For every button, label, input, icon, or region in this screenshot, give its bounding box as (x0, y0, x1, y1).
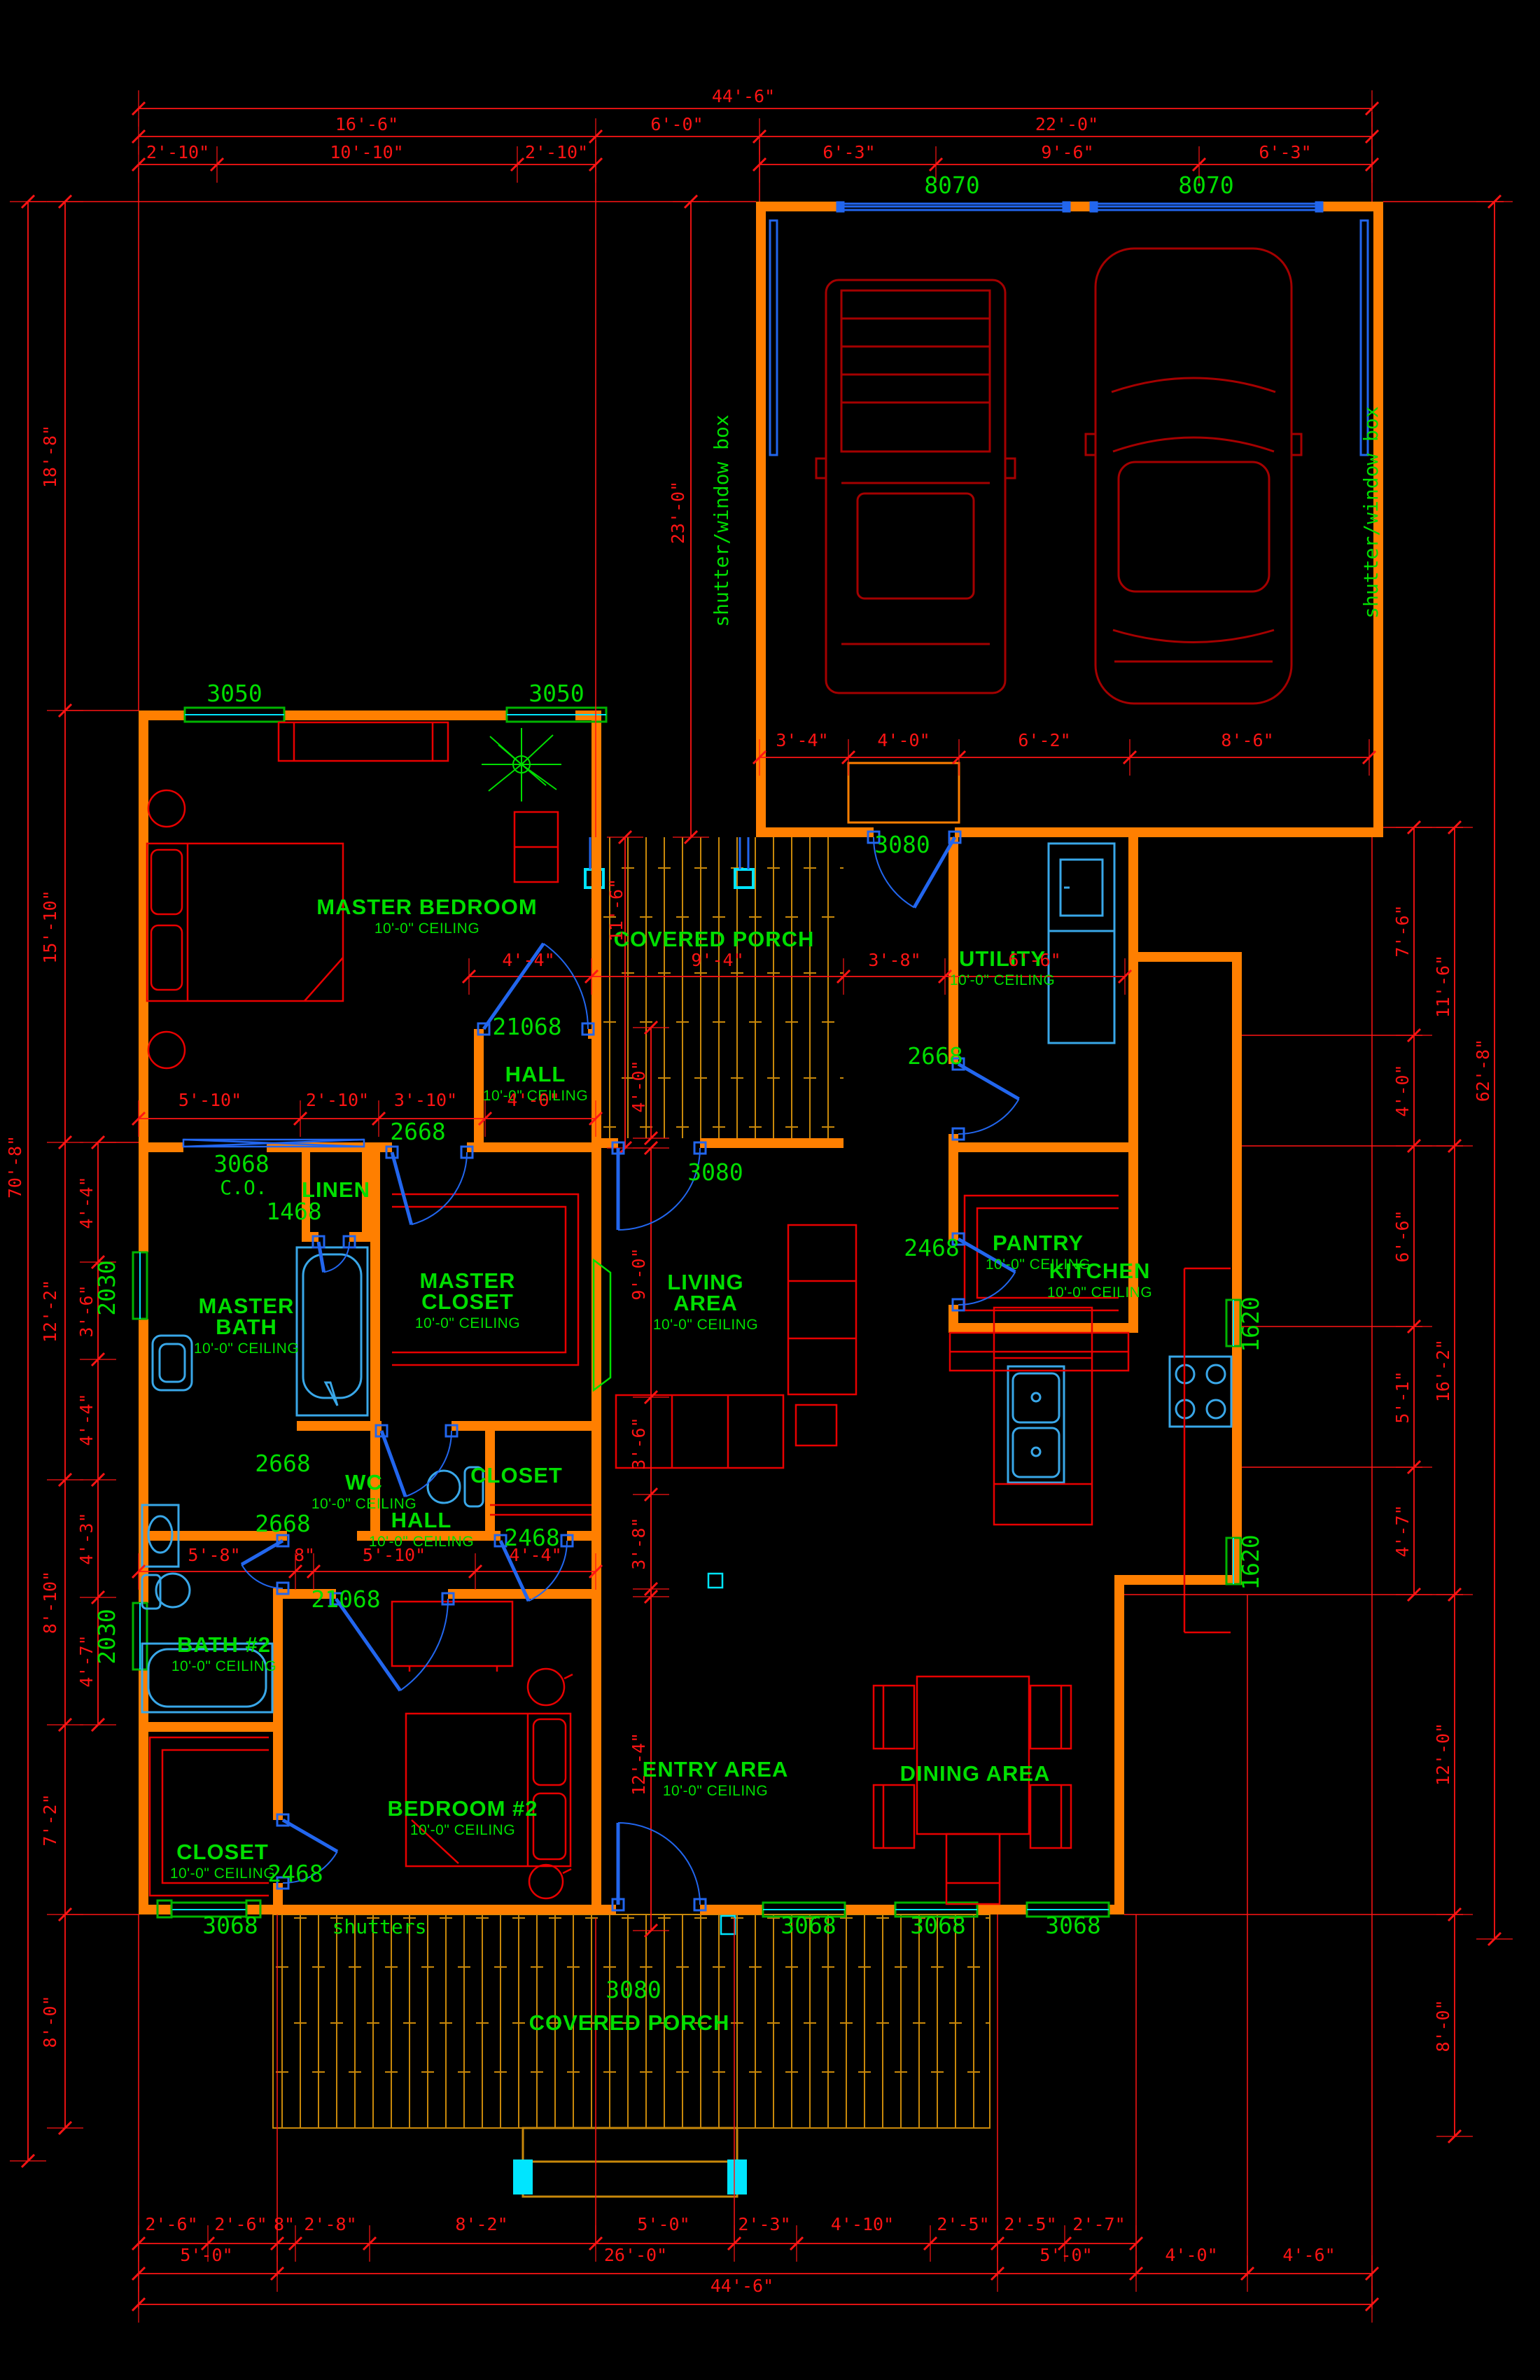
dimension-44: 2'-10" (306, 1090, 369, 1110)
b2-stool (529, 1865, 563, 1898)
room-label-dining-area: DINING AREA (900, 1761, 1051, 1786)
opening-tag-2468-6: 2468 (904, 1234, 959, 1261)
door-2668-wc (376, 1425, 457, 1497)
dimension-32: 62'-8" (1473, 1039, 1493, 1102)
opening-tag-3050-3: 3050 (528, 680, 584, 707)
dimension-63: 2'-5" (937, 2214, 989, 2234)
mb-dresser (279, 722, 448, 761)
dimension-22: 23'-0" (668, 481, 688, 544)
shutter-strip (770, 220, 777, 455)
dining-chair (1030, 1785, 1071, 1848)
opening-tag-1620-20: 1620 (1237, 1296, 1264, 1352)
room-label-hall-upper: HALL (505, 1062, 566, 1086)
dimension-30: 12'-0" (1433, 1723, 1453, 1786)
room-label-covered-porch-bottom: COVERED PORCH (529, 2010, 730, 2035)
dimension-65: 2'-7" (1072, 2214, 1125, 2234)
dimension-66: 5'-0" (180, 2245, 232, 2265)
room-label-master-closet: MASTERCLOSET (420, 1268, 516, 1314)
floor-box (708, 1574, 722, 1588)
kitchen-sink (1008, 1366, 1064, 1483)
ceiling-label-master-bedroom: 10'-0" CEILING (374, 920, 479, 937)
dimension-1: 16'-6" (335, 114, 398, 134)
opening-tag-3068-25: 3068 (1045, 1912, 1100, 1939)
b2-stool (528, 1669, 564, 1705)
dimension-26: 5'-1" (1392, 1371, 1413, 1423)
dimension-0: 44'-6" (712, 86, 775, 106)
ceiling-label-master-closet: 10'-0" CEILING (415, 1315, 520, 1331)
dimension-11: 18'-8" (40, 425, 60, 488)
dimension-55: 2'-6" (145, 2214, 197, 2234)
dimension-61: 2'-3" (738, 2214, 790, 2234)
dining-chair (874, 1686, 914, 1749)
opening-tag-2668-13: 2668 (255, 1450, 310, 1477)
dimension-67: 26'-0" (604, 2245, 667, 2265)
room-label-kitchen: KITCHEN (1049, 1259, 1151, 1283)
opening-tag-2030-12: 2030 (93, 1260, 120, 1315)
side-table (796, 1405, 836, 1445)
b2-bed (406, 1714, 570, 1866)
dimension-27: 4'-7" (1392, 1504, 1413, 1557)
dimension-4: 2'-10" (146, 142, 209, 162)
ceiling-label-master-bath: 10'-0" CEILING (194, 1340, 299, 1357)
ceiling-label-kitchen: 10'-0" CEILING (1047, 1284, 1152, 1301)
dimension-42: 4'-0" (629, 1060, 649, 1112)
dimension-13: 12'-2" (40, 1280, 60, 1343)
opening-tag-8070-0: 8070 (924, 171, 979, 199)
opening-tag-2668-15: 2668 (255, 1510, 310, 1537)
b2-desk (392, 1602, 512, 1666)
ceiling-label-entry-area: 10'-0" CEILING (663, 1783, 768, 1799)
floor-plan-canvas: Residential floor plan - CAD drawing (0, 0, 1540, 2380)
dimension-8: 9'-6" (1041, 142, 1093, 162)
dimension-57: 8" (274, 2214, 295, 2234)
dimension-45: 3'-10" (394, 1090, 457, 1110)
opening-tag-3080-19: 3080 (605, 1976, 661, 2003)
dimension-7: 6'-3" (822, 142, 875, 162)
door-jamb (1063, 202, 1070, 211)
room-label-bath-2: BATH #2 (177, 1632, 271, 1657)
dimension-18: 3'-6" (76, 1284, 97, 1337)
dimension-29: 16'-2" (1433, 1339, 1453, 1402)
dimension-38: 9'-4" (691, 950, 743, 970)
dimension-14: 8'-10" (40, 1571, 60, 1634)
sofa (788, 1225, 856, 1394)
dimension-41: 11'-6" (606, 878, 626, 941)
opening-tag-8070-1: 8070 (1178, 171, 1233, 199)
room-label-bedroom-2: BEDROOM #2 (388, 1796, 538, 1821)
opening-tag-2668-5: 2668 (907, 1042, 962, 1070)
porch-post (513, 2159, 533, 2194)
mb-bed (147, 843, 343, 1001)
opening-tag-3080-4: 3080 (874, 831, 930, 858)
dimension-47: 9'-0" (629, 1247, 649, 1300)
opening-tag-21068-17: 21068 (311, 1585, 380, 1613)
garage-step (848, 763, 959, 822)
opening-tag-21068-8: 21068 (492, 1013, 561, 1040)
door-2668-master-closet (386, 1147, 472, 1224)
opening-tag-3050-2: 3050 (206, 680, 262, 707)
dimension-46: 4'-0" (507, 1090, 559, 1110)
dining-bench (946, 1834, 1000, 1904)
dimension-12: 15'-10" (40, 890, 60, 963)
dimension-43: 5'-10" (178, 1090, 241, 1110)
ceiling-label-bedroom-2: 10'-0" CEILING (410, 1822, 515, 1838)
dimension-35: 6'-2" (1018, 730, 1070, 750)
opening-tag-2668-9: 2668 (390, 1118, 445, 1145)
dimension-71: 44'-6" (710, 2276, 773, 2296)
room-label-hall-lower: HALL (391, 1508, 452, 1532)
annotation-3: shutter/window box (1359, 406, 1382, 618)
room-label-closet-bedroom2: CLOSET (176, 1840, 269, 1864)
ceiling-label-closet-bedroom2: 10'-0" CEILING (170, 1865, 275, 1882)
door-3080-porch (612, 1142, 706, 1230)
dimension-6: 2'-10" (525, 142, 588, 162)
dimension-2: 6'-0" (650, 114, 703, 134)
dimension-10: 70'-8" (5, 1135, 25, 1198)
dimension-70: 4'-6" (1282, 2245, 1335, 2265)
dimension-15: 7'-2" (40, 1793, 60, 1846)
room-label-covered-porch-top: COVERED PORCH (614, 927, 815, 951)
utility-appliance (1049, 843, 1114, 1043)
opening-tag-3080-7: 3080 (687, 1158, 743, 1186)
dimension-62: 4'-10" (831, 2214, 894, 2234)
dimension-68: 5'-0" (1039, 2245, 1092, 2265)
opening-tag-3068-23: 3068 (780, 1912, 836, 1939)
dimension-19: 4'-4" (76, 1393, 97, 1445)
dimension-56: 2'-6" (214, 2214, 267, 2234)
dimension-5: 10'-10" (330, 142, 403, 162)
dimension-64: 2'-5" (1004, 2214, 1056, 2234)
annotation-1: shutters (332, 1915, 427, 1938)
door-2668-utility (953, 1058, 1019, 1140)
dimension-48: 3'-6" (629, 1417, 649, 1469)
opening-tag-2468-18: 2468 (267, 1860, 323, 1887)
ceiling-label-bath-2: 10'-0" CEILING (171, 1658, 276, 1674)
ceiling-label-utility: 10'-0" CEILING (950, 972, 1055, 988)
porch-post (727, 2159, 747, 2194)
dimension-60: 5'-0" (637, 2214, 689, 2234)
door-jamb (1316, 202, 1322, 211)
dimension-58: 2'-8" (304, 2214, 356, 2234)
dimension-16: 8'-0" (40, 1995, 60, 2047)
room-label-living-area: LIVINGAREA (667, 1270, 743, 1315)
mb-chair (148, 790, 185, 827)
opening-tag-3068-24: 3068 (910, 1912, 965, 1939)
dining-chair (874, 1785, 914, 1848)
dimension-51: 8" (294, 1545, 315, 1565)
car-truck (816, 280, 1015, 693)
dimension-54: 12'-4" (629, 1732, 649, 1795)
dimension-36: 8'-6" (1221, 730, 1273, 750)
annotation-0: C.O. (220, 1176, 267, 1199)
room-label-master-bedroom: MASTER BEDROOM (316, 895, 537, 919)
opening-tag-1468-11: 1468 (266, 1198, 321, 1225)
dimension-34: 4'-0" (877, 730, 930, 750)
dimension-50: 5'-8" (188, 1545, 240, 1565)
dimension-69: 4'-0" (1165, 2245, 1217, 2265)
room-label-wc: WC (345, 1470, 383, 1494)
dimension-28: 11'-6" (1433, 955, 1453, 1018)
dimension-49: 3'-8" (629, 1517, 649, 1569)
dimension-20: 4'-3" (76, 1512, 97, 1564)
dimension-17: 4'-4" (76, 1176, 97, 1228)
room-label-closet-hall: CLOSET (470, 1463, 563, 1487)
opening-tag-3068-22: 3068 (202, 1912, 258, 1939)
dimension-40: 6'-6" (1008, 950, 1060, 970)
dimension-31: 8'-0" (1433, 1999, 1453, 2052)
door-3080-entry (612, 1823, 706, 1910)
annotation-2: shutter/window box (710, 414, 733, 626)
door-jamb (837, 202, 843, 211)
garage-doors (770, 202, 1368, 455)
room-label-master-bath: MASTERBATH (199, 1294, 295, 1339)
door-2668-bath2 (241, 1535, 288, 1594)
room-label-pantry: PANTRY (993, 1231, 1084, 1255)
plant (482, 728, 561, 801)
dimension-39: 3'-8" (868, 950, 920, 970)
dimension-37: 4'-4" (502, 950, 554, 970)
dimension-3: 22'-0" (1035, 114, 1098, 134)
wc-toilet (428, 1471, 460, 1503)
dimension-21: 4'-7" (76, 1634, 97, 1687)
opening-tag-3068-10: 3068 (213, 1150, 269, 1177)
room-label-entry-area: ENTRY AREA (643, 1757, 789, 1781)
cars (816, 248, 1301, 703)
dimension-53: 4'-4" (509, 1545, 561, 1565)
opening-tag-1620-21: 1620 (1237, 1534, 1264, 1590)
dimension-9: 6'-3" (1259, 142, 1311, 162)
dining-chair (1030, 1686, 1071, 1749)
mb-chair (148, 1032, 185, 1068)
dimension-24: 4'-0" (1392, 1064, 1413, 1116)
opening-tag-2030-16: 2030 (93, 1609, 120, 1664)
dimension-52: 5'-10" (363, 1545, 426, 1565)
dimension-33: 3'-4" (776, 730, 828, 750)
dining-table (917, 1676, 1029, 1834)
car-sedan (1086, 248, 1301, 703)
dimension-23: 7'-6" (1392, 904, 1413, 957)
ceiling-label-living-area: 10'-0" CEILING (653, 1317, 758, 1333)
dimension-59: 8'-2" (455, 2214, 507, 2234)
door-jamb (1091, 202, 1097, 211)
dimension-25: 6'-6" (1392, 1210, 1413, 1262)
